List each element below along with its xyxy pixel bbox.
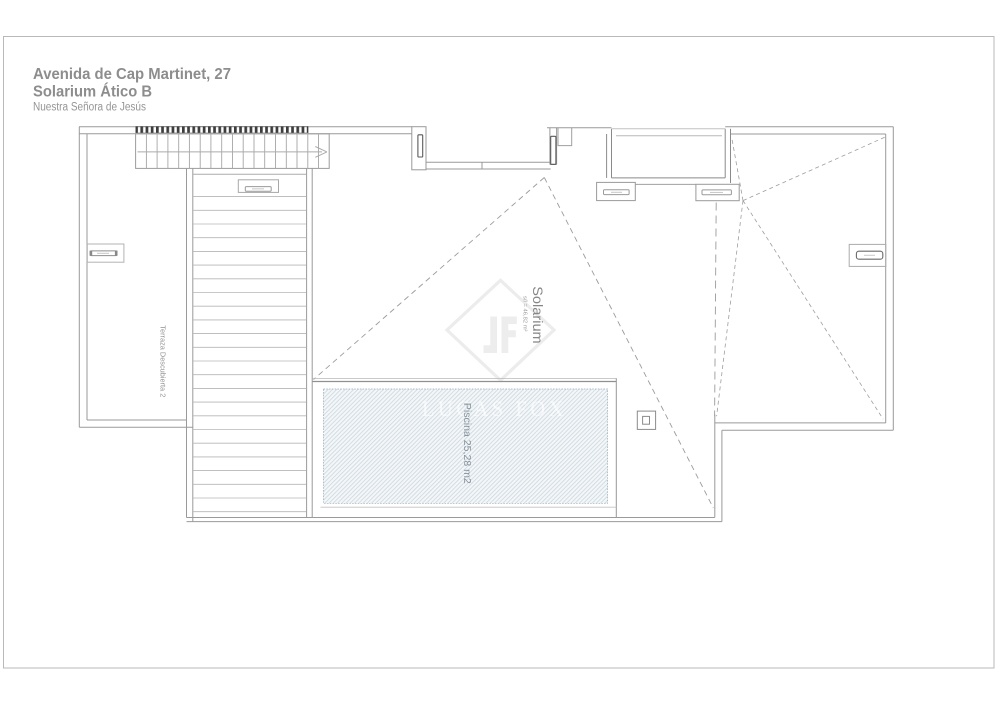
svg-text:Piscina 25,28 m2: Piscina 25,28 m2 (461, 403, 472, 484)
svg-text:Solarium: Solarium (530, 286, 545, 344)
svg-text:Terraza Descubierta 2: Terraza Descubierta 2 (159, 325, 168, 397)
svg-text:Solarium Ático B: Solarium Ático B (33, 83, 152, 100)
svg-text:s/l = 46,82 m²: s/l = 46,82 m² (522, 296, 528, 332)
svg-text:LUCAS FOX: LUCAS FOX (422, 396, 567, 421)
svg-text:Nuestra Señora de Jesús: Nuestra Señora de Jesús (33, 101, 146, 113)
svg-text:Avenida de Cap Martinet, 27: Avenida de Cap Martinet, 27 (33, 66, 231, 83)
